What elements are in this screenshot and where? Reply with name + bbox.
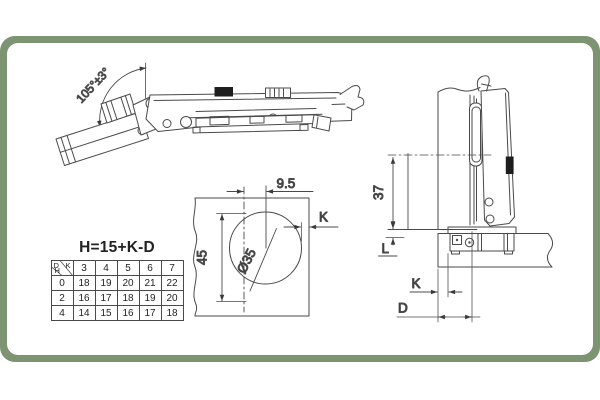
hk-table-block: H=15+K-D D K H 3 4 5 6 7 0 18 19 20 21 bbox=[50, 239, 184, 321]
table-cell: 17 bbox=[139, 306, 161, 321]
hinge-side-view: 37 L K D bbox=[371, 76, 553, 322]
table-cell: 18 bbox=[161, 306, 183, 321]
table-row-label: 4 bbox=[51, 306, 73, 321]
corner-col-var: K bbox=[65, 262, 70, 269]
cup-drilling-pattern: 9.5 45 Ø35 K bbox=[194, 176, 338, 316]
hk-table: D K H 3 4 5 6 7 0 18 19 20 21 22 2 16 17… bbox=[51, 260, 184, 321]
angle-dim-label: 105°±3° bbox=[73, 65, 113, 106]
adjustment-screw bbox=[215, 87, 234, 97]
table-cell: 19 bbox=[95, 276, 117, 291]
table-cell: 21 bbox=[139, 276, 161, 291]
table-formula: H=15+K-D bbox=[50, 239, 184, 257]
table-cell: 16 bbox=[117, 306, 139, 321]
table-cell: 20 bbox=[117, 276, 139, 291]
table-row: 2 16 17 18 19 20 bbox=[51, 291, 183, 306]
dim-k-drill: K bbox=[319, 210, 328, 225]
dim-45: 45 bbox=[195, 250, 210, 265]
dim-d-side: D bbox=[398, 301, 408, 316]
adjustment-screw-side bbox=[506, 157, 514, 175]
dim-lines-k-drill bbox=[284, 223, 338, 242]
corner-cell-var: H bbox=[55, 267, 60, 274]
table-cell: 18 bbox=[117, 291, 139, 306]
mounting-plate-side bbox=[448, 227, 516, 254]
table-col-header: 3 bbox=[73, 261, 95, 276]
table-cell: 22 bbox=[161, 276, 183, 291]
table-row: 4 14 15 16 17 18 bbox=[51, 306, 183, 321]
table-cell: 15 bbox=[95, 306, 117, 321]
table-col-header: 6 bbox=[139, 261, 161, 276]
hinge-open-view: 105°±3° bbox=[56, 63, 364, 166]
table-row-label: 0 bbox=[51, 276, 73, 291]
door-panel bbox=[56, 112, 149, 166]
dim-9-5: 9.5 bbox=[277, 176, 296, 191]
table-cell: 14 bbox=[73, 306, 95, 321]
table-cell: 19 bbox=[139, 291, 161, 306]
dim-37: 37 bbox=[371, 185, 386, 200]
dim-k-side: K bbox=[412, 276, 421, 291]
dim-cup-diameter: Ø35 bbox=[234, 246, 259, 276]
table-row-label: 2 bbox=[51, 291, 73, 306]
dim-l: L bbox=[382, 241, 390, 256]
table-cell: 20 bbox=[161, 291, 183, 306]
table-row: 0 18 19 20 21 22 bbox=[51, 276, 183, 291]
table-corner-cell: D K H bbox=[51, 261, 73, 276]
table-cell: 17 bbox=[95, 291, 117, 306]
table-col-header: 5 bbox=[117, 261, 139, 276]
technical-drawing: 105°±3° 9.5 45 Ø35 K bbox=[0, 0, 600, 400]
table-col-header: 4 bbox=[95, 261, 117, 276]
table-cell: 16 bbox=[73, 291, 95, 306]
hinge-body-side bbox=[470, 76, 515, 226]
release-clip-side bbox=[477, 76, 491, 91]
table-cell: 18 bbox=[73, 276, 95, 291]
table-col-header: 7 bbox=[161, 261, 183, 276]
